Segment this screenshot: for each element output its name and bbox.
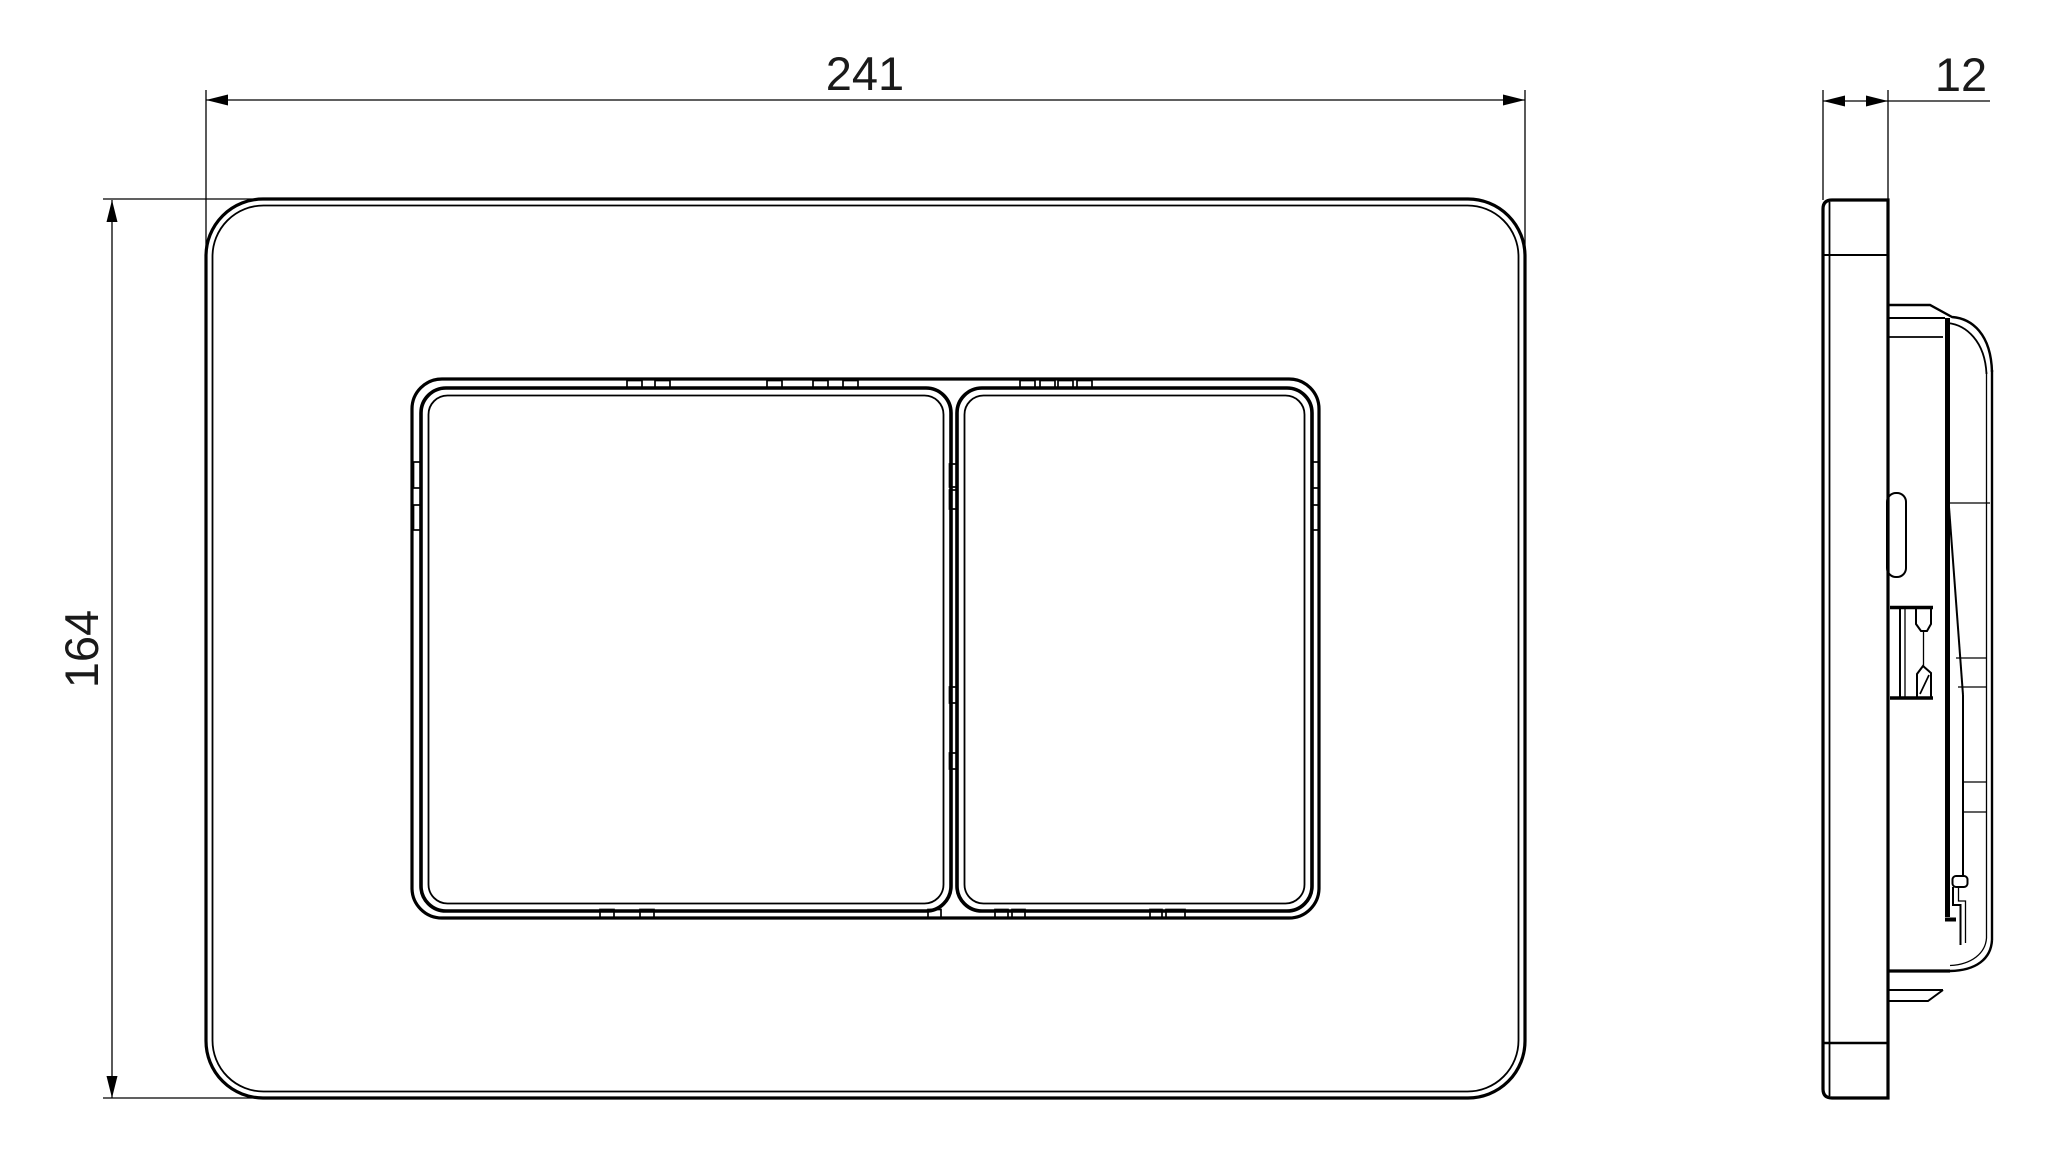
plate-outer-contour bbox=[206, 199, 1525, 1098]
drawing-svg: 241 164 bbox=[0, 0, 2061, 1165]
plate-inner-contour bbox=[213, 206, 1519, 1092]
side-view bbox=[1823, 200, 1992, 1098]
arrowhead-up-icon bbox=[107, 200, 118, 222]
arrowhead-right-icon bbox=[1866, 96, 1888, 107]
arrowhead-left-icon bbox=[206, 95, 228, 106]
dimension-side-depth: 12 bbox=[1823, 48, 1990, 200]
button-clip-marks bbox=[414, 381, 1320, 918]
front-view bbox=[206, 199, 1525, 1098]
left-flush-button bbox=[421, 388, 951, 911]
dimension-label-depth: 12 bbox=[1935, 48, 1987, 101]
side-foot-bracket bbox=[1953, 876, 1968, 945]
arrowhead-left-icon bbox=[1823, 96, 1845, 107]
technical-drawing: 241 164 bbox=[0, 0, 2061, 1165]
arrowhead-right-icon bbox=[1503, 95, 1525, 106]
left-flush-button-bevel bbox=[429, 396, 944, 904]
dimension-front-height: 164 bbox=[55, 199, 263, 1098]
arrowhead-down-icon bbox=[107, 1076, 118, 1098]
dimension-front-width: 241 bbox=[206, 47, 1525, 252]
button-opening bbox=[412, 379, 1319, 918]
dimension-label-width: 241 bbox=[826, 47, 904, 100]
side-plate-slab bbox=[1823, 200, 1888, 1098]
right-flush-button bbox=[957, 388, 1312, 911]
side-latch-mechanism bbox=[1890, 607, 1933, 698]
right-flush-button-bevel bbox=[965, 396, 1305, 904]
dimension-label-height: 164 bbox=[55, 610, 108, 688]
side-rear-housing bbox=[1887, 305, 1992, 1001]
